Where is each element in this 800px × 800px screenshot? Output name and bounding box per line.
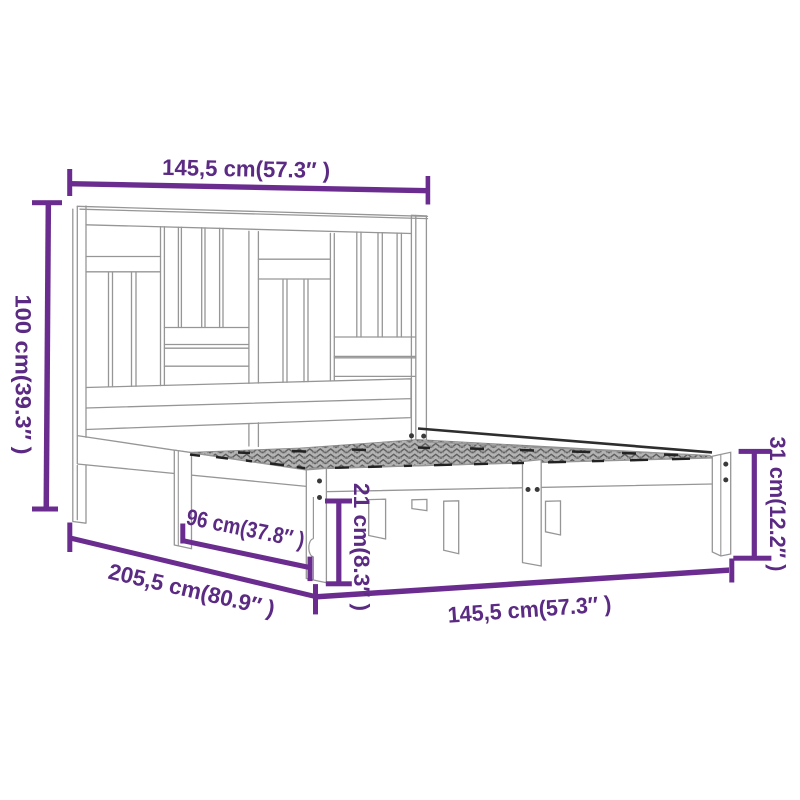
svg-text:145,5 cm(57.3″ ): 145,5 cm(57.3″ ) [162,155,330,183]
svg-text:21 cm(8.3″ ): 21 cm(8.3″ ) [349,483,374,611]
svg-text:100 cm(39.3″ ): 100 cm(39.3″ ) [11,295,36,455]
svg-text:31 cm(12.2″ ): 31 cm(12.2″ ) [765,437,790,572]
